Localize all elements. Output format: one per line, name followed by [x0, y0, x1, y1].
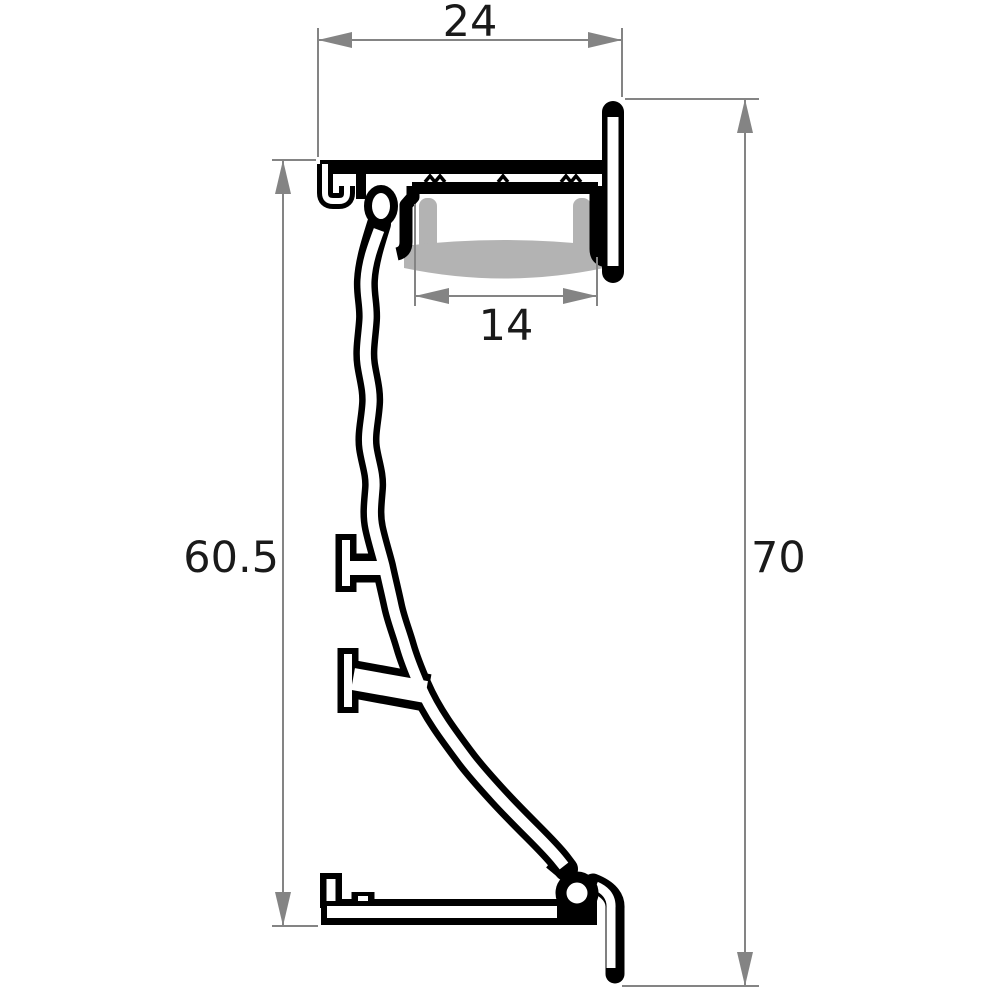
- curved-front-wall: [365, 224, 566, 869]
- dim-top-width: 24: [318, 0, 622, 157]
- arrowhead-right: [563, 288, 597, 304]
- serration-teeth-middle: [498, 176, 508, 182]
- serration-teeth-left: [425, 176, 445, 182]
- top-spring-bead: [368, 189, 394, 223]
- diffuser-lens-group: [404, 198, 604, 279]
- arrowhead-left: [415, 288, 449, 304]
- screw-port-boss: [561, 877, 593, 909]
- diffuser-lens-arc: [404, 240, 604, 279]
- dim-right-height: 70: [622, 99, 806, 986]
- dim-label-top-width: 24: [443, 0, 498, 47]
- technical-drawing-canvas: 24 14 60.5 70: [0, 0, 1000, 1000]
- dim-left-height: 60.5: [183, 160, 318, 926]
- dim-label-inner-width: 14: [479, 301, 534, 351]
- dim-label-right-height: 70: [751, 533, 806, 583]
- led-channel-left-wall: [397, 186, 413, 254]
- arrowhead-bottom: [737, 952, 753, 986]
- arrowhead-left: [318, 32, 352, 48]
- dimension-annotations: 24 14 60.5 70: [183, 0, 805, 986]
- dim-label-left-height: 60.5: [183, 533, 279, 583]
- led-profile-cross-section-drawing: 24 14 60.5 70: [0, 0, 1000, 1000]
- arrowhead-top: [275, 160, 291, 194]
- arrowhead-right: [588, 32, 622, 48]
- serration-teeth-right: [561, 176, 581, 182]
- profile-details: [368, 176, 593, 909]
- arrowhead-bottom: [275, 892, 291, 926]
- arrowhead-top: [737, 99, 753, 133]
